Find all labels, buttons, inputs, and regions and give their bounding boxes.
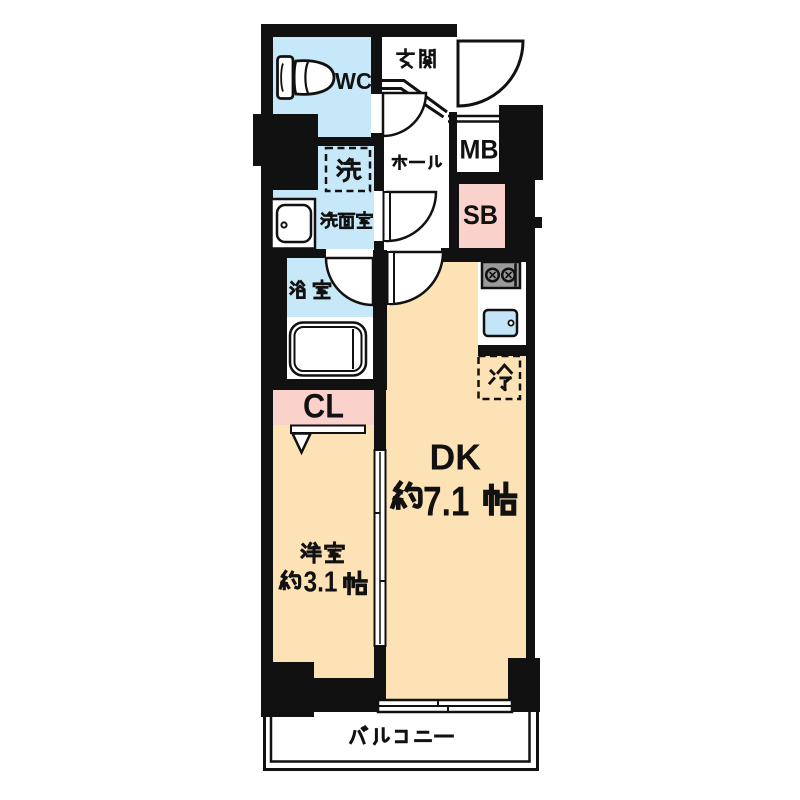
svg-text:SB: SB (463, 200, 498, 230)
svg-text:3.1: 3.1 (304, 567, 338, 599)
svg-text:7.1: 7.1 (423, 477, 470, 524)
svg-text:MB: MB (460, 135, 499, 165)
svg-text:DK: DK (430, 437, 482, 478)
svg-text:CL: CL (303, 388, 344, 426)
svg-text:WC: WC (335, 68, 372, 94)
